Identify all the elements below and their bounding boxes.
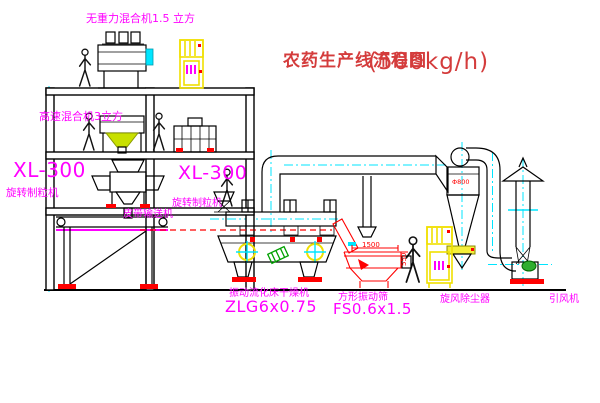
indicator-light [198, 44, 201, 47]
label-dryer-model: ZLG6x0.75 [225, 297, 317, 316]
label-sieve-model: FS0.6x1.5 [333, 300, 412, 318]
person-figure [154, 113, 165, 150]
cabinet-knobs [187, 65, 195, 74]
indicator-light [447, 230, 450, 233]
indicator-light [447, 265, 450, 268]
label-fan: 引风机 [549, 292, 579, 305]
duct-reducer [436, 156, 448, 192]
label-second-mixer: 高速混合机3立方 [39, 109, 123, 123]
granulator-upper [174, 118, 216, 152]
person-figure [406, 237, 419, 282]
dim-cyclone-dia: Φ800 [452, 178, 470, 186]
centerlines [49, 86, 552, 292]
cabinet-knobs [435, 261, 443, 270]
exhaust-duct [262, 156, 448, 237]
vibration-motor [268, 247, 289, 264]
label-granulator-mid-name: 旋转制粒机 [172, 196, 222, 209]
flex-connectors [240, 226, 334, 235]
fan-motor [522, 261, 536, 271]
gravity-free-mixer [98, 32, 153, 88]
mixer-end-cap [146, 49, 153, 65]
column-middle [146, 88, 154, 290]
floor-slab-top [46, 88, 254, 95]
label-cyclone: 旋风除尘器 [440, 292, 490, 305]
label-granulator-left-model: XL-300 [13, 158, 86, 182]
mixer-cone [106, 133, 138, 147]
dim-sieve-height: 550 [400, 253, 408, 266]
dim-sieve-width: 1500 [362, 241, 380, 249]
label-granulator-mid-model: XL-300 [178, 162, 247, 184]
hood-ports [242, 200, 336, 212]
person-figure [80, 49, 91, 86]
cad-flow-diagram: 无重力混合机1.5 立方 农药生产线流程图 (500kg/h) 高速混合机3立方… [0, 0, 600, 403]
label-belt-conveyor: 皮带输送机 [123, 207, 173, 220]
label-top-mixer: 无重力混合机1.5 立方 [86, 11, 195, 25]
indicator-light [199, 70, 202, 73]
control-cabinet-cyclone [427, 227, 452, 288]
vortex-finder [451, 148, 469, 166]
diagram-title-capacity: (500kg/h) [368, 49, 489, 75]
fan-base [510, 279, 544, 284]
sieve-drop-pipe [363, 176, 371, 227]
control-cabinet-top [180, 40, 203, 88]
induced-draft-fan [510, 261, 544, 284]
label-granulator-left-name: 旋转制粒机 [6, 186, 59, 199]
